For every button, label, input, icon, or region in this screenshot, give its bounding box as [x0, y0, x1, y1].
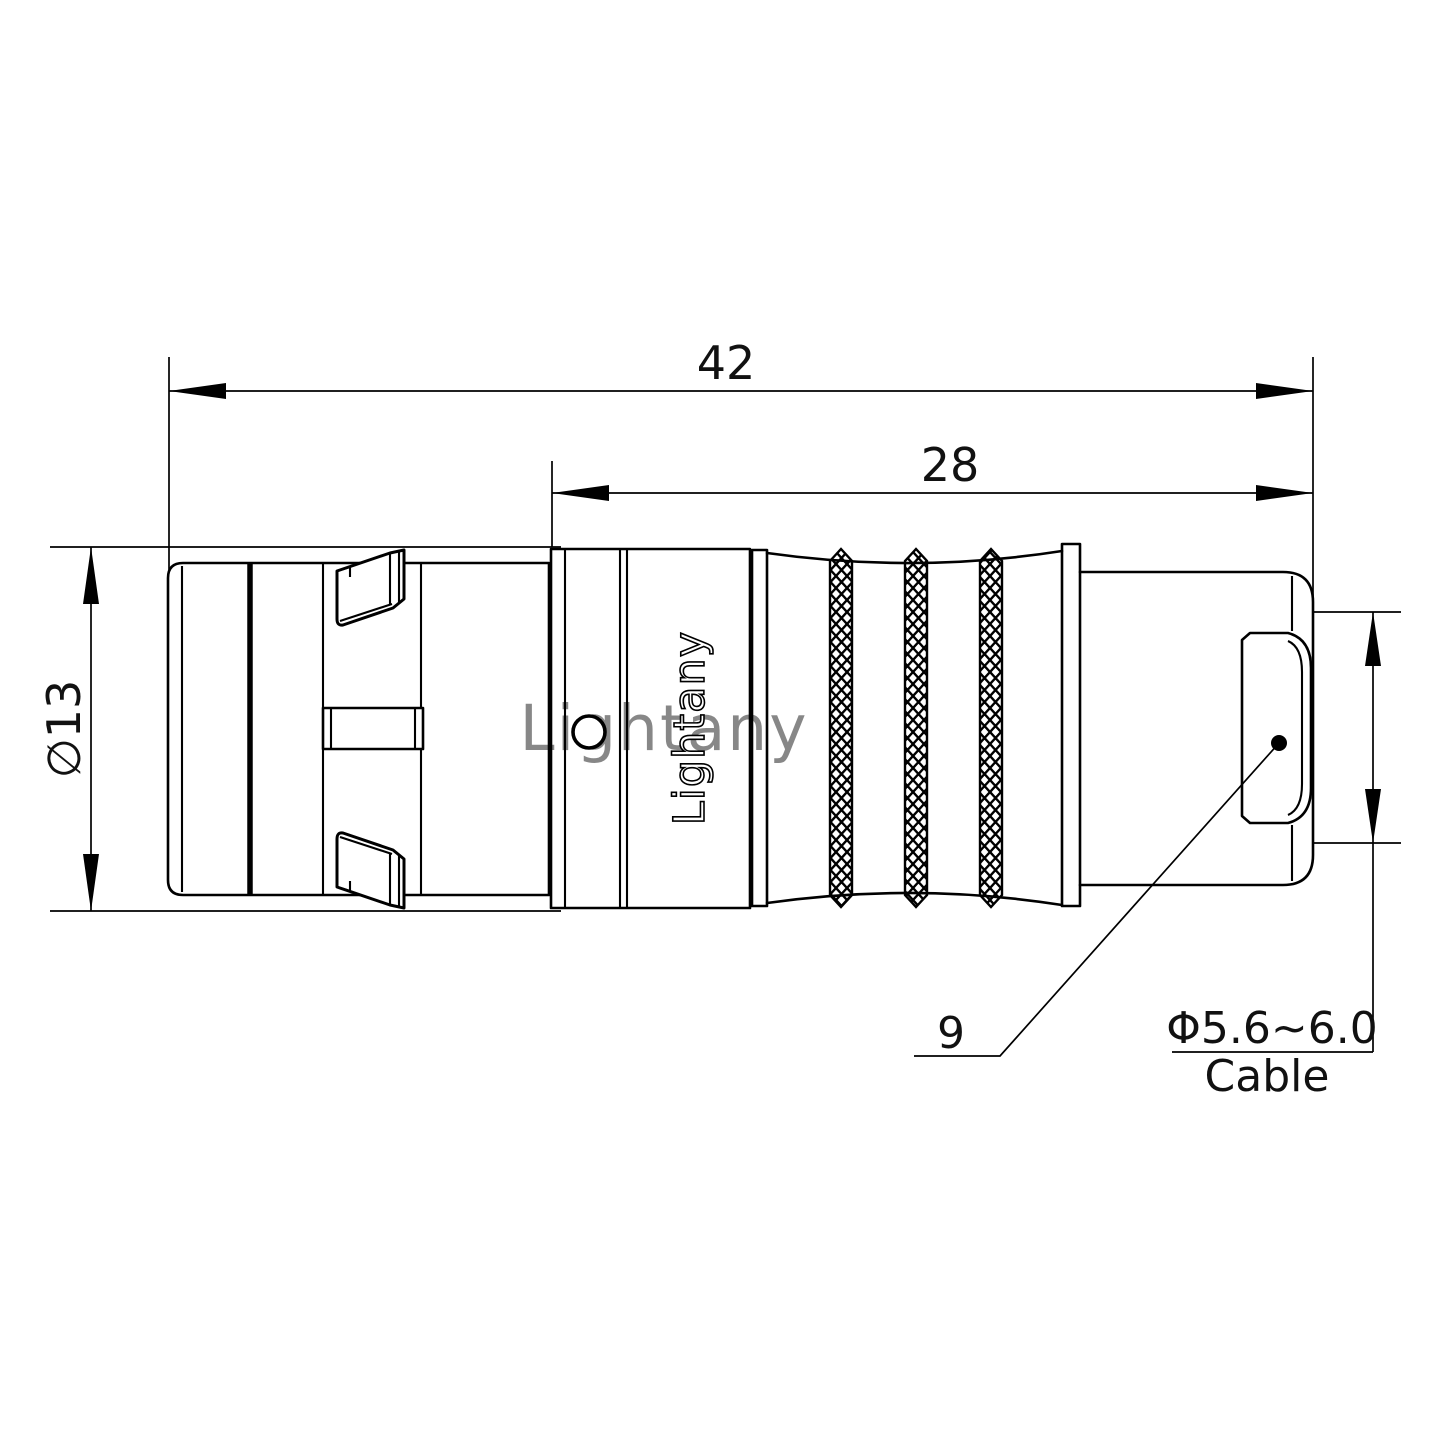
- knurl-band: [905, 549, 927, 907]
- dim-diameter-label: ∅13: [37, 680, 91, 779]
- knurl-band: [830, 549, 852, 907]
- sleeve-window: [323, 708, 423, 749]
- dim-28-label: 28: [921, 438, 980, 492]
- cable-word-label: Cable: [1205, 1051, 1330, 1102]
- latch-wing-bottom: [337, 833, 404, 908]
- drawing-canvas: Lightany: [0, 0, 1440, 1440]
- connector-drawing: Lightany: [0, 0, 1440, 1440]
- cable-boot: [1242, 633, 1311, 823]
- cable-range-label: Φ5.6~6.0: [1166, 1003, 1377, 1054]
- vent-hole: [573, 716, 605, 748]
- dimension-rear-length: 28: [552, 438, 1313, 547]
- rear-housing: [1062, 544, 1313, 906]
- watermark-text: Lightany: [519, 692, 808, 765]
- latch-wing-top: [337, 550, 404, 625]
- engraved-brand-text: Lightany: [665, 631, 715, 825]
- dimension-cable-entry: Φ5.6~6.0 Cable: [1166, 612, 1401, 1102]
- leader-dot: [1271, 735, 1287, 751]
- dimension-overall-length: 42: [169, 336, 1313, 598]
- item-9-label: 9: [937, 1008, 965, 1059]
- dim-42-label: 42: [697, 336, 756, 390]
- dimension-diameter: ∅13: [37, 547, 561, 911]
- knurl-band: [980, 549, 1002, 907]
